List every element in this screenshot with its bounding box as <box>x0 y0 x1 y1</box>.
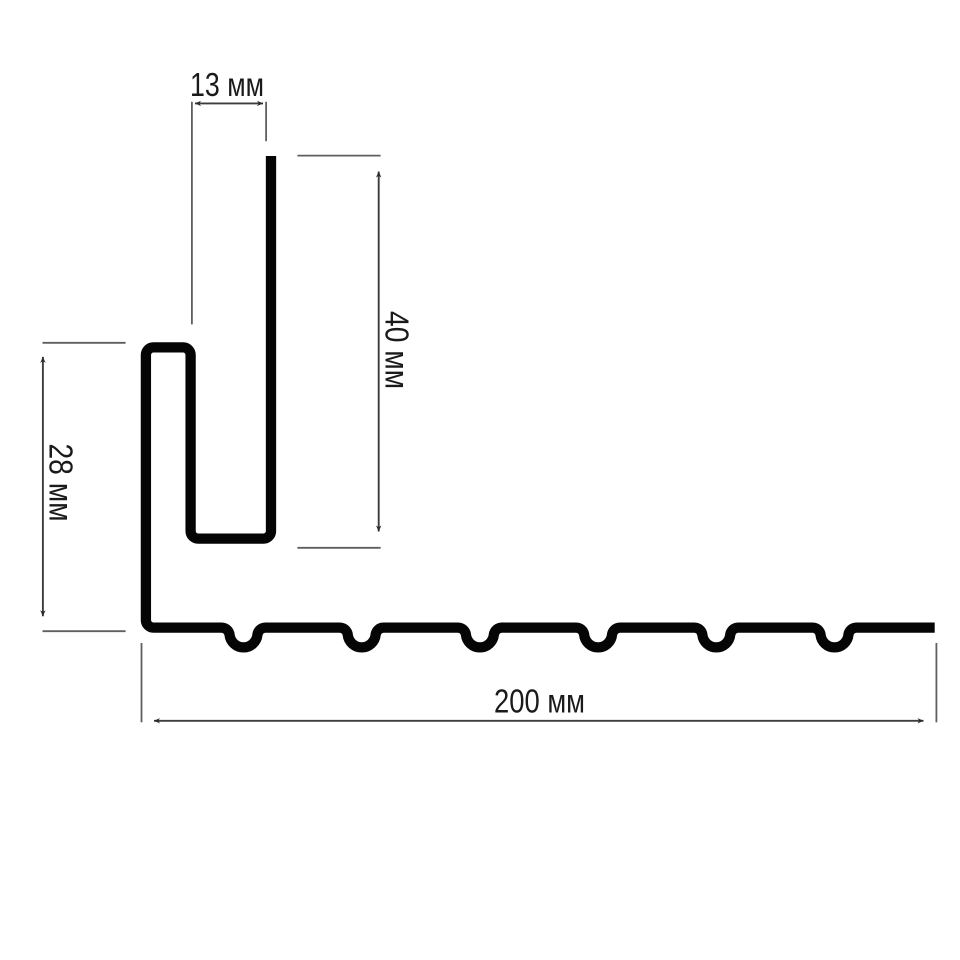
svg-text:200 мм: 200 мм <box>494 683 585 720</box>
svg-text:28 мм: 28 мм <box>42 444 79 522</box>
svg-text:13 мм: 13 мм <box>190 66 264 103</box>
svg-text:40 мм: 40 мм <box>379 311 416 389</box>
